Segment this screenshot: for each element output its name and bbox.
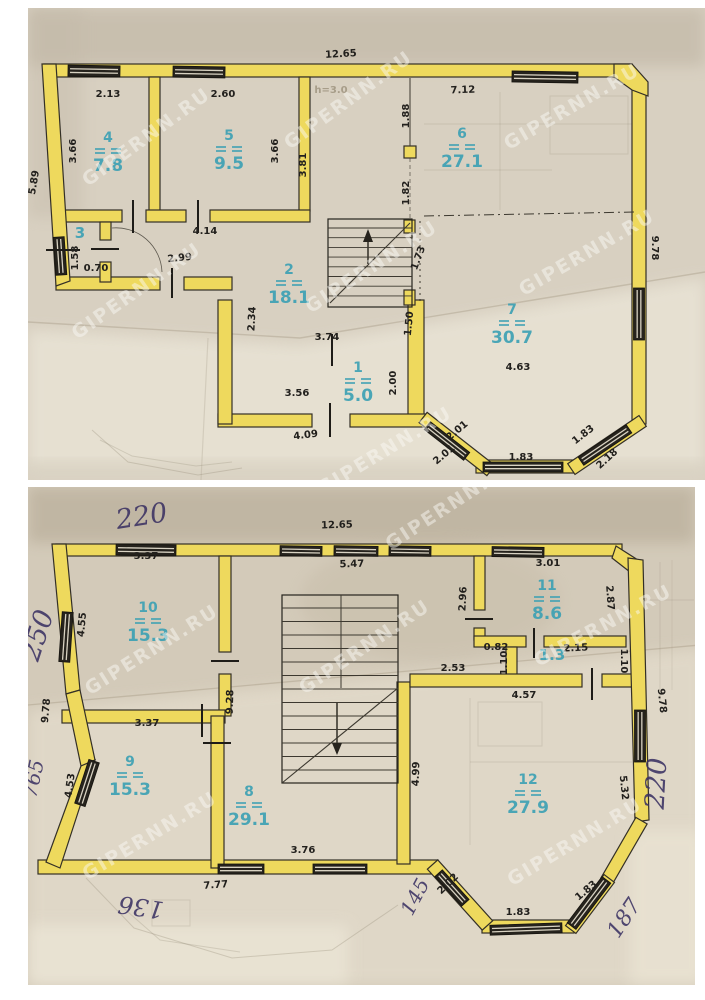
- room-number: 9: [125, 754, 135, 770]
- room-number: 3: [75, 224, 85, 242]
- wall: [146, 210, 186, 222]
- window-frame: [492, 547, 544, 558]
- window: [313, 864, 367, 874]
- room-area: 30.7: [491, 328, 533, 348]
- window-glass-line: [336, 549, 376, 550]
- room-area: 27.9: [507, 798, 549, 818]
- wall: [100, 222, 111, 240]
- dimension-label: 4.99: [411, 761, 423, 786]
- dimension-label: 5.47: [339, 559, 364, 571]
- floor1-photo: 12.652.132.60h=3.07.123.663.663.815.891.…: [27, 8, 705, 500]
- dimension-label: 2.13: [96, 89, 121, 100]
- wall: [404, 146, 416, 158]
- room-number: 10: [138, 600, 158, 616]
- window: [512, 71, 578, 83]
- dimension-label: 12.65: [325, 48, 357, 61]
- window: [634, 288, 645, 340]
- paper-crease: [28, 925, 348, 985]
- wall: [219, 556, 231, 652]
- dimension-label: 4.63: [506, 362, 531, 373]
- wall: [410, 674, 582, 687]
- room-label: 3: [75, 224, 85, 242]
- window: [53, 237, 67, 276]
- window-frame: [280, 546, 322, 557]
- window-glass-line: [494, 550, 542, 551]
- dimension-label: 9.78: [40, 698, 53, 724]
- window-glass-line: [494, 553, 542, 554]
- window-frame: [512, 71, 578, 83]
- room-number: 1: [353, 360, 363, 376]
- room-number: 6: [457, 126, 467, 142]
- wall: [397, 682, 410, 864]
- room-number: 4: [103, 130, 113, 146]
- room-area: 15.3: [109, 780, 151, 800]
- window-frame: [635, 710, 646, 762]
- dimension-label: 4.14: [193, 226, 218, 237]
- window: [483, 462, 563, 472]
- window-frame: [334, 546, 378, 557]
- dimension-label: 2.00: [388, 371, 399, 396]
- window-glass-line: [175, 73, 223, 74]
- wall: [632, 84, 646, 424]
- window-glass-line: [70, 72, 118, 73]
- window: [68, 65, 120, 77]
- dimension-label: 9.78: [649, 236, 660, 261]
- window-frame: [173, 66, 225, 78]
- dimension-label: 12.65: [321, 519, 353, 531]
- window-frame: [68, 65, 120, 77]
- window-frame: [53, 237, 67, 276]
- room-number: 2: [284, 262, 294, 278]
- window-glass-line: [175, 70, 223, 71]
- dimension-label: 1.82: [401, 181, 412, 206]
- dimension-label: 1.88: [401, 104, 412, 129]
- dimension-label: 4.55: [76, 612, 89, 638]
- scanned-floorplan-page: 12.652.132.60h=3.07.123.663.663.815.891.…: [0, 0, 705, 1000]
- floorplan-photo: 12.652.132.60h=3.07.123.663.663.815.891.…: [0, 0, 705, 1000]
- dimension-label: 7.12: [450, 85, 475, 97]
- window-frame: [634, 288, 645, 340]
- wall: [210, 210, 310, 222]
- dimension-label: 3.01: [536, 558, 561, 569]
- wall: [218, 300, 232, 424]
- paper-crease: [28, 8, 705, 66]
- dimension-label: 3.66: [270, 139, 281, 164]
- window: [635, 710, 646, 762]
- dimension-label: 1.83: [509, 452, 534, 463]
- dimension-label: 3.81: [298, 153, 309, 178]
- room-number: 5: [224, 128, 234, 144]
- dimension-label: 3.56: [285, 388, 310, 399]
- dimension-label: 3.37: [134, 551, 159, 562]
- window: [280, 546, 322, 557]
- dimension-label: 0.70: [84, 263, 109, 274]
- room-number: 8: [244, 784, 254, 800]
- dimension-label: 9.28: [225, 689, 237, 714]
- window: [492, 547, 544, 558]
- window: [218, 864, 264, 874]
- dimension-label: 7.77: [203, 879, 228, 892]
- room-number: 11: [537, 578, 556, 594]
- dimension-label: 3.37: [135, 718, 160, 729]
- window-frame: [490, 923, 562, 936]
- window-glass-line: [282, 552, 320, 553]
- room-area: 9.5: [214, 154, 244, 174]
- window-glass-line: [70, 69, 118, 70]
- room-area: 29.1: [228, 810, 270, 830]
- handwritten-annotation: 220: [640, 757, 674, 811]
- window-frame: [483, 462, 563, 472]
- room-area: 27.1: [441, 152, 483, 172]
- dimension-label: 3.76: [291, 845, 316, 856]
- wall: [404, 290, 415, 305]
- dimension-label: 1.10: [618, 649, 629, 674]
- window-glass-line: [336, 552, 376, 553]
- dimension-label: 2.60: [211, 89, 236, 100]
- window: [334, 546, 378, 557]
- room-area: 8.6: [532, 604, 562, 624]
- window: [490, 923, 562, 936]
- dimension-label: 4.57: [512, 690, 537, 701]
- dimension-label: 2.53: [441, 663, 466, 674]
- wall: [184, 277, 232, 290]
- floor2-photo: 12.653.375.473.014.552.962.879.280.822.1…: [15, 453, 705, 985]
- room-area: 5.0: [343, 386, 373, 406]
- window: [173, 66, 225, 78]
- wall: [474, 556, 485, 610]
- dimension-label: 1.10: [499, 651, 510, 676]
- window-frame: [218, 864, 264, 874]
- dimension-label: 3.66: [68, 139, 79, 164]
- window-frame: [313, 864, 367, 874]
- dimension-label: 2.96: [457, 586, 469, 611]
- window-glass-line: [282, 549, 320, 550]
- room-number: 12: [518, 772, 537, 788]
- dimension-label: 3.74: [315, 332, 340, 343]
- room-number: 7: [507, 302, 517, 318]
- dimension-label: 1.58: [70, 246, 81, 271]
- dimension-label: 2.34: [246, 306, 258, 331]
- dimension-label: 1.83: [506, 907, 531, 918]
